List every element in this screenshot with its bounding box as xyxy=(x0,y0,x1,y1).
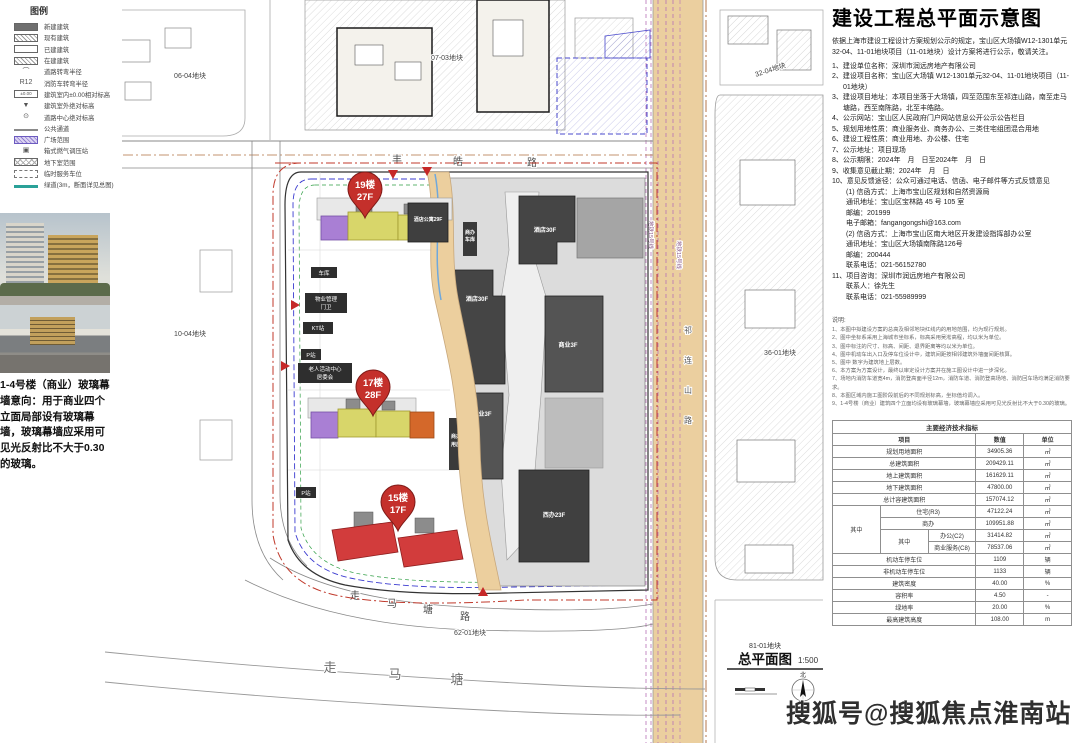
notice-item: 5、规划用地性质：商业服务业、商务办公、三类住宅组团混合用地 xyxy=(832,125,1072,136)
legend-item-label: 建筑室外绝对标高 xyxy=(44,101,94,110)
photo-road xyxy=(0,296,110,305)
notice-item: 7、公示地址：项目现场 xyxy=(832,146,1072,157)
building-label: 西办23F xyxy=(543,511,566,519)
under-construction-swatch-icon xyxy=(14,57,38,65)
table-row: 地下建筑面积47800.00㎡ xyxy=(833,482,1072,494)
mid-gray-building xyxy=(577,198,643,258)
legend-item-label: 道路中心绝对标高 xyxy=(44,113,94,122)
road-label-char: 马 xyxy=(388,667,401,682)
table-header-item: 项目 xyxy=(833,434,976,446)
photo2-road xyxy=(0,355,110,373)
note-line: 6、本方案为方案设计，最终以审定设计方案并在施工图设计中进一步深化。 xyxy=(832,367,1072,375)
table-row: 非机动车停车位1133辆 xyxy=(833,566,1072,578)
road-label-char: 路 xyxy=(684,415,692,425)
facility-label: KT站 xyxy=(312,324,325,332)
tower-19-purple xyxy=(321,216,348,240)
tower-19-yellow-a xyxy=(348,212,398,240)
built-building-swatch-icon xyxy=(14,45,38,53)
table-row: 地上建筑面积161629.11㎡ xyxy=(833,470,1072,482)
greenway-swatch-icon xyxy=(14,185,38,188)
facility-label: 门卫 xyxy=(320,303,332,311)
notice-title: 建设工程总平面示意图 xyxy=(832,2,1072,31)
economic-indicator-table: 主要经济技术指标 项目 数值 单位 规划用地面积34905.36㎡ 总建筑面积2… xyxy=(832,420,1072,626)
legend-panel: 图例 新建建筑 现有建筑 已建建筑 在建建筑 ⌒道路转弯半径 R12消防车转弯半… xyxy=(0,0,122,212)
road-label-char: 祁 xyxy=(684,325,692,335)
legend-item: 已建建筑 xyxy=(0,44,122,55)
legend-item-label: 在建建筑 xyxy=(44,56,69,65)
parcel-label: 36-01地块 xyxy=(764,348,796,357)
legend-item: R12消防车转弯半径 xyxy=(0,77,122,88)
outdoor-level-icon: ▼ xyxy=(14,102,38,110)
tower-15-red-a xyxy=(332,522,398,561)
notes-title: 说明: xyxy=(832,315,1072,324)
facility-label: 车库 xyxy=(318,269,330,277)
note-line: 2、图中坐标系采用上海城市坐标系，标高采用吴淞高程，均以米为单位。 xyxy=(832,334,1072,342)
table-row: 其中住宅(R3)47122.24㎡ xyxy=(833,506,1072,518)
facility-label: P站 xyxy=(301,489,311,497)
temp-parking-swatch-icon xyxy=(14,170,38,178)
pin-label: 27F xyxy=(357,192,374,203)
notice-item: 2、建设项目名称：宝山区大场镇 W12-1301单元32-04、11-01地块项… xyxy=(832,72,1072,93)
notice-subitem: 联系电话：021-55989999 xyxy=(832,293,1072,304)
sohu-watermark: 搜狐号@搜狐焦点淮南站 xyxy=(786,694,1071,730)
existing-building-swatch-icon xyxy=(14,34,38,42)
new-building-swatch-icon xyxy=(14,23,38,31)
legend-item: ⊙道路中心绝对标高 xyxy=(0,111,122,122)
building-label: 酒店公寓29F xyxy=(414,216,443,223)
legend-title: 图例 xyxy=(30,4,122,17)
road-label-char: 走 xyxy=(323,660,336,675)
public-passage-swatch-icon xyxy=(14,129,38,131)
road-label-char: 走 xyxy=(350,590,360,602)
table-header-value: 数值 xyxy=(976,434,1024,446)
facility-label: 物业管理 xyxy=(315,295,338,303)
legend-item-label: 现有建筑 xyxy=(44,33,69,42)
north-label: 北 xyxy=(800,671,806,679)
legend-item-label: 公共通道 xyxy=(44,124,69,133)
pin-label: 19楼 xyxy=(355,179,376,191)
notice-subitem: (2) 信函方式：上海市宝山区南大地区开发建设指挥部办公室 xyxy=(832,230,1072,241)
notice-subitem: 邮编：200444 xyxy=(832,251,1072,262)
notice-intro: 依据上海市建设工程设计方案规划公示的规定，宝山区大场镇W12-1301单元32-… xyxy=(832,37,1072,59)
qilianshan-road-band xyxy=(653,0,703,743)
plan-scale: 1:500 xyxy=(798,656,819,665)
table-title: 主要经济技术指标 xyxy=(833,421,1072,434)
legend-item: ▣箱式燃气调压站 xyxy=(0,145,122,156)
legend-item-label: 道路转弯半径 xyxy=(44,67,82,76)
building-label: 酒店30F xyxy=(466,295,489,303)
parcel-label: 10-04地块 xyxy=(174,329,206,338)
tower-17-orange xyxy=(410,412,434,438)
notice-subitem: 联系电话：021-56152780 xyxy=(832,261,1072,272)
public-notice-panel: 建设工程总平面示意图 依据上海市建设工程设计方案规划公示的规定，宝山区大场镇W1… xyxy=(830,0,1076,700)
legend-item: 现有建筑 xyxy=(0,32,122,43)
table-row: 最高建筑高度108.00m xyxy=(833,614,1072,626)
notice-item: 9、收集意见截止期：2024年 月 日 xyxy=(832,167,1072,178)
notice-item: 3、建设项目地址：本项目坐落于大场镇，四至范围东至祁连山路，南至走马塘路，西至南… xyxy=(832,93,1072,114)
building-label: 车库 xyxy=(465,236,475,243)
road-label-char: 皓 xyxy=(453,156,463,168)
building-label: 酒店30F xyxy=(534,226,557,234)
legend-item-label: 新建建筑 xyxy=(44,22,69,31)
building-label: 商办 xyxy=(465,229,475,236)
legend-item: ▼建筑室外绝对标高 xyxy=(0,100,122,111)
parcel-label: 06-04地块 xyxy=(174,71,206,80)
tower-17-purple xyxy=(311,412,338,438)
facility-label: 居委会 xyxy=(317,373,334,381)
legend-item: 临时服务车位 xyxy=(0,168,122,179)
road-label-char: 马 xyxy=(387,598,397,610)
table-row: 容积率4.50- xyxy=(833,590,1072,602)
notice-item: 11、项目咨询：深圳市润远房地产有限公司 xyxy=(832,272,1072,283)
notice-item: 8、公示期限：2024年 月 日至2024年 月 日 xyxy=(832,156,1072,167)
photo-trees xyxy=(0,283,110,297)
notes-block: 说明: 1、本图中拟建设方案的总高及相邻地块红线内的用地范围，均为现行规划。 2… xyxy=(832,315,1072,408)
notice-subitem: 通讯地址：宝山区大场镇南陈路126号 xyxy=(832,240,1072,251)
legend-item: ⌒道路转弯半径 xyxy=(0,66,122,77)
legend-item: 地下室范围 xyxy=(0,157,122,168)
facade-caption: 1-4号楼（商业）玻璃幕墙意向：用于商业四个立面局部设有玻璃幕墙，玻璃幕墙应采用… xyxy=(0,378,110,473)
notice-subitem: 邮编：201999 xyxy=(832,209,1072,220)
metro-line-label: 地铁15号线 xyxy=(675,241,683,270)
site-plan-map: 丰 皓 路 走 马 塘 路 走 马 塘 祁 连 山 路 地铁15号线 地铁15号… xyxy=(105,0,825,743)
note-line: 5、图中 数字为建筑地上层数。 xyxy=(832,359,1072,367)
parcel-label: 07-03地块 xyxy=(431,53,463,62)
note-line: 1、本图中拟建设方案的总高及相邻地块红线内的用地范围，均为现行规划。 xyxy=(832,326,1072,334)
plan-title: 总平面图 xyxy=(738,651,792,667)
table-row: 规划用地面积34905.36㎡ xyxy=(833,446,1072,458)
road-label-char: 塘 xyxy=(423,603,433,616)
legend-item: 绿道(3m，断面详见总图) xyxy=(0,179,122,190)
basement-extent-swatch-icon xyxy=(14,158,38,166)
tower-17-yellow-a xyxy=(338,409,376,437)
legend-item: 在建建筑 xyxy=(0,55,122,66)
facade-intent-panel: 1-4号楼（商业）玻璃幕墙意向：用于商业四个立面局部设有玻璃幕墙，玻璃幕墙应采用… xyxy=(0,213,110,473)
tower-15-red-b xyxy=(398,530,463,567)
note-line: 7、场地内消防车道宽4m，消防登高面半径12m，消防车道、消防登高场地、消防回车… xyxy=(832,375,1072,391)
road-label-char: 丰 xyxy=(392,153,402,166)
fire-truck-radius-icon: R12 xyxy=(14,79,38,87)
table-row: 机动车停车位1109辆 xyxy=(833,554,1072,566)
gas-station-icon: ▣ xyxy=(14,147,38,155)
note-line: 3、图中标注的尺寸、标高、间距、退界距离等均以米为单位。 xyxy=(832,343,1072,351)
rendering-photo-street xyxy=(0,305,110,373)
legend-item-label: 消防车转弯半径 xyxy=(44,79,88,88)
legend-item: 新建建筑 xyxy=(0,21,122,32)
notice-subitem: 联系人：徐先生 xyxy=(832,282,1072,293)
east-parcels: 36-01地块 32-04地块 xyxy=(715,10,823,743)
legend-item-label: 已建建筑 xyxy=(44,45,69,54)
notice-subitem: 电子邮箱：fangangongshi@163.com xyxy=(832,219,1072,230)
building-label: 商业3F xyxy=(558,341,577,349)
legend-item-label: 绿道(3m，断面详见总图) xyxy=(44,180,114,189)
notice-item: 4、公示网站：宝山区人民政府门户网站信息公开公示公告栏目 xyxy=(832,114,1072,125)
facility-label: 老人活动中心 xyxy=(308,365,342,373)
plan-parcel-label: 81-01地块 xyxy=(749,641,781,650)
parcel-label: 32-04地块 xyxy=(754,60,787,78)
facility-labels: 车库 物业管理 门卫 KT站 P站 老人活动中心 居委会 P站 xyxy=(296,267,352,498)
notice-item: 6、建设工程性质：商业用地、办公楼、住宅 xyxy=(832,135,1072,146)
north-parcels: 06-04地块 07-03地块 xyxy=(105,0,650,140)
table-row: 总建筑面积209429.11㎡ xyxy=(833,458,1072,470)
legend-item-label: 临时服务车位 xyxy=(44,169,82,178)
notice-subitem: (1) 信函方式：上海市宝山区规划和自然资源局 xyxy=(832,188,1072,199)
legend-item: ±0.00建筑室内±0.00相对标高 xyxy=(0,89,122,100)
road-label-char: 连 xyxy=(684,355,692,365)
tower-17-yellow-b xyxy=(376,411,410,437)
public-notice-poster: 图例 新建建筑 现有建筑 已建建筑 在建建筑 ⌒道路转弯半径 R12消防车转弯半… xyxy=(0,0,1080,743)
plan-title-block: 81-01地块 总平面图 1:500 北 xyxy=(727,641,823,701)
road-center-level-icon: ⊙ xyxy=(14,113,38,121)
turn-radius-icon: ⌒ xyxy=(14,68,38,76)
pin-label: 17楼 xyxy=(363,377,384,389)
facility-label: P站 xyxy=(306,351,316,359)
table-header-unit: 单位 xyxy=(1024,434,1072,446)
legend-item-label: 建筑室内±0.00相对标高 xyxy=(44,90,110,99)
road-label-char: 路 xyxy=(460,610,470,623)
legend-item: 公共通道 xyxy=(0,123,122,134)
pin-label: 28F xyxy=(365,390,382,401)
legend-item: 广场范围 xyxy=(0,134,122,145)
parcel-label: 62-01地块 xyxy=(454,628,486,637)
legend-item-label: 广场范围 xyxy=(44,135,69,144)
notice-item: 1、建设单位名称：深圳市润远房地产有限公司 xyxy=(832,62,1072,73)
west-parcel: 10-04地块 xyxy=(174,250,232,460)
plaza-swatch-icon xyxy=(14,136,38,144)
road-label-char: 塘 xyxy=(450,672,463,687)
legend-item-label: 箱式燃气调压站 xyxy=(44,146,88,155)
pin-label: 15楼 xyxy=(388,492,409,504)
note-line: 4、图中机动车出入口及停车位设计中，建筑间距按相邻建筑外墙面间距核算。 xyxy=(832,351,1072,359)
rendering-photo-building xyxy=(0,213,110,305)
road-label-char: 山 xyxy=(684,385,692,395)
notice-subitem: 通讯地址：宝山区宝林路 45 号 105 室 xyxy=(832,198,1072,209)
note-line: 9、1-4号楼（商业）建筑四个立面均设有玻璃幕墙，玻璃幕墙应采用可见光反射比不大… xyxy=(832,400,1072,408)
notice-item: 10、意见反馈途径：公众可通过电话、信函、电子邮件等方式反馈意见 xyxy=(832,177,1072,188)
table-row: 绿地率20.00% xyxy=(833,602,1072,614)
photo2-gold-facade xyxy=(30,317,75,345)
legend-item-label: 地下室范围 xyxy=(44,158,75,167)
pin-label: 17F xyxy=(390,505,407,516)
table-row: 建筑密度40.00% xyxy=(833,578,1072,590)
note-line: 8、本图区域内施工图阶段前后的不同规划标高，坐标值均调入。 xyxy=(832,392,1072,400)
table-row: 总计容建筑面积157074.12㎡ xyxy=(833,494,1072,506)
indoor-level-icon: ±0.00 xyxy=(14,90,38,98)
